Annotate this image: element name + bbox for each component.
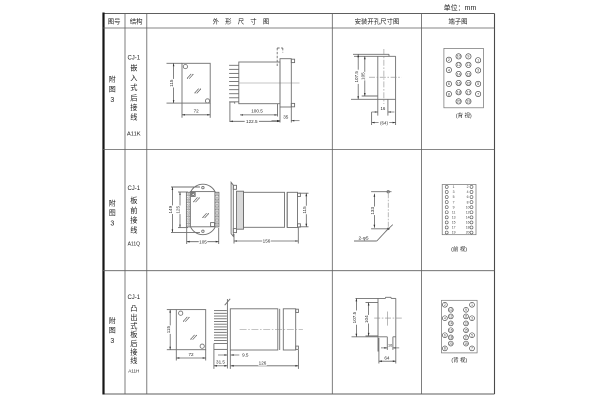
svg-text:4: 4 [448, 68, 450, 72]
svg-text:凸: 凸 [130, 304, 137, 313]
svg-text:1: 1 [453, 185, 455, 189]
svg-text:CJ-1: CJ-1 [127, 186, 140, 192]
svg-text:8: 8 [448, 92, 450, 96]
svg-text:15: 15 [464, 328, 468, 332]
svg-text:10: 10 [457, 55, 461, 59]
svg-text:图: 图 [109, 85, 116, 93]
svg-text:115: 115 [302, 206, 307, 214]
svg-text:单位：mm: 单位：mm [444, 3, 477, 12]
svg-text:18: 18 [466, 226, 470, 230]
svg-text:107.5: 107.5 [354, 71, 359, 83]
svg-text:4: 4 [467, 190, 469, 194]
svg-text:入: 入 [130, 73, 137, 82]
svg-text:16: 16 [388, 343, 392, 347]
svg-text:附: 附 [109, 75, 116, 84]
svg-text:20: 20 [457, 100, 461, 104]
svg-text:(前 视): (前 视) [451, 245, 467, 253]
svg-text:3: 3 [453, 190, 455, 194]
svg-text:A11Q: A11Q [128, 241, 141, 247]
svg-text:15: 15 [466, 81, 470, 85]
svg-text:17: 17 [452, 226, 456, 230]
svg-text:板: 板 [130, 330, 137, 339]
svg-text:19: 19 [464, 342, 468, 346]
svg-text:115: 115 [169, 79, 174, 87]
svg-text:13: 13 [464, 322, 468, 326]
svg-text:9: 9 [467, 55, 469, 59]
svg-text:9.5: 9.5 [242, 353, 249, 358]
svg-text:10: 10 [466, 205, 470, 209]
svg-text:嵌: 嵌 [130, 64, 137, 73]
svg-text:122.5: 122.5 [246, 119, 258, 124]
svg-text:126: 126 [259, 361, 267, 366]
svg-text:20: 20 [466, 231, 470, 235]
svg-text:105: 105 [360, 72, 365, 80]
svg-text:105: 105 [199, 239, 207, 244]
svg-text:14: 14 [449, 322, 453, 326]
svg-text:安装开孔尺寸图: 安装开孔尺寸图 [355, 16, 400, 25]
svg-text:附: 附 [109, 316, 116, 325]
svg-text:156: 156 [263, 239, 271, 244]
svg-text:(背 视): (背 视) [451, 356, 467, 364]
svg-text:12: 12 [457, 63, 461, 67]
svg-text:12: 12 [466, 210, 470, 214]
svg-text:16: 16 [449, 328, 453, 332]
svg-text:附: 附 [109, 198, 116, 207]
svg-text:2: 2 [448, 58, 450, 62]
svg-text:A11H: A11H [128, 369, 139, 374]
svg-text:5: 5 [471, 333, 473, 337]
svg-text:3: 3 [110, 97, 114, 104]
svg-text:CJ-1: CJ-1 [127, 295, 140, 301]
svg-text:10: 10 [449, 308, 453, 312]
svg-text:35: 35 [283, 114, 289, 119]
svg-text:(64): (64) [380, 120, 388, 125]
svg-text:(背 视): (背 视) [456, 112, 472, 120]
svg-text:13: 13 [466, 72, 470, 76]
svg-text:接: 接 [130, 103, 137, 112]
svg-text:外 形 尺 寸 图: 外 形 尺 寸 图 [213, 16, 272, 25]
svg-text:19: 19 [452, 231, 456, 235]
svg-text:15: 15 [452, 221, 456, 225]
svg-text:7: 7 [477, 92, 479, 96]
svg-text:6: 6 [467, 195, 469, 199]
svg-text:7: 7 [471, 347, 473, 351]
svg-text:72: 72 [194, 109, 200, 114]
svg-text:3: 3 [477, 69, 479, 73]
svg-text:接: 接 [130, 216, 137, 225]
svg-text:3: 3 [110, 220, 114, 227]
svg-text:11: 11 [467, 63, 471, 67]
svg-text:11: 11 [452, 210, 456, 214]
svg-text:式: 式 [130, 83, 137, 92]
svg-text:6: 6 [444, 333, 446, 337]
svg-text:149: 149 [168, 205, 173, 213]
svg-text:9: 9 [453, 205, 455, 209]
svg-text:11: 11 [464, 315, 468, 319]
svg-text:6: 6 [448, 82, 450, 86]
svg-text:104: 104 [364, 315, 369, 323]
svg-text:125: 125 [176, 206, 181, 214]
svg-text:64: 64 [384, 355, 390, 360]
svg-text:图: 图 [109, 326, 116, 334]
svg-text:115: 115 [166, 326, 171, 334]
svg-text:端子图: 端子图 [448, 16, 467, 25]
svg-text:13: 13 [452, 215, 456, 219]
svg-text:1: 1 [477, 58, 479, 62]
svg-text:18: 18 [449, 336, 453, 340]
svg-text:12: 12 [449, 315, 453, 319]
svg-text:31.5: 31.5 [216, 359, 225, 364]
svg-text:8: 8 [467, 200, 469, 204]
svg-text:CJ-1: CJ-1 [127, 56, 140, 62]
svg-text:17: 17 [466, 90, 470, 94]
svg-text:1: 1 [471, 303, 473, 307]
svg-text:后: 后 [130, 93, 137, 102]
svg-text:14: 14 [457, 72, 461, 76]
svg-text:线: 线 [130, 113, 137, 122]
svg-text:前: 前 [130, 206, 137, 215]
svg-text:出: 出 [130, 313, 137, 322]
svg-text:8: 8 [444, 347, 446, 351]
svg-text:14: 14 [466, 215, 470, 219]
svg-text:2-φ5: 2-φ5 [358, 235, 368, 241]
svg-text:16: 16 [457, 81, 461, 85]
svg-text:9: 9 [465, 308, 467, 312]
svg-text:133: 133 [370, 207, 375, 215]
svg-text:5: 5 [453, 195, 455, 199]
svg-text:17: 17 [464, 336, 468, 340]
svg-text:20: 20 [449, 342, 453, 346]
svg-text:4: 4 [444, 316, 446, 320]
svg-text:线: 线 [130, 225, 137, 234]
svg-text:图号: 图号 [108, 17, 121, 25]
svg-text:A11K: A11K [127, 131, 141, 137]
svg-text:18: 18 [457, 90, 461, 94]
svg-text:100.5: 100.5 [251, 109, 263, 114]
svg-text:72: 72 [188, 352, 194, 357]
svg-text:107.5: 107.5 [352, 311, 357, 323]
svg-text:线: 线 [130, 356, 137, 365]
svg-text:3: 3 [110, 338, 114, 345]
svg-text:16: 16 [466, 221, 470, 225]
svg-text:图: 图 [109, 209, 116, 217]
svg-text:板: 板 [130, 196, 137, 205]
svg-text:19: 19 [466, 100, 470, 104]
svg-text:2: 2 [467, 185, 469, 189]
svg-text:结构: 结构 [130, 16, 143, 25]
svg-text:5: 5 [477, 82, 479, 86]
svg-text:16: 16 [380, 106, 385, 111]
svg-text:2: 2 [444, 303, 446, 307]
svg-text:7: 7 [453, 200, 455, 204]
svg-text:3: 3 [471, 316, 473, 320]
